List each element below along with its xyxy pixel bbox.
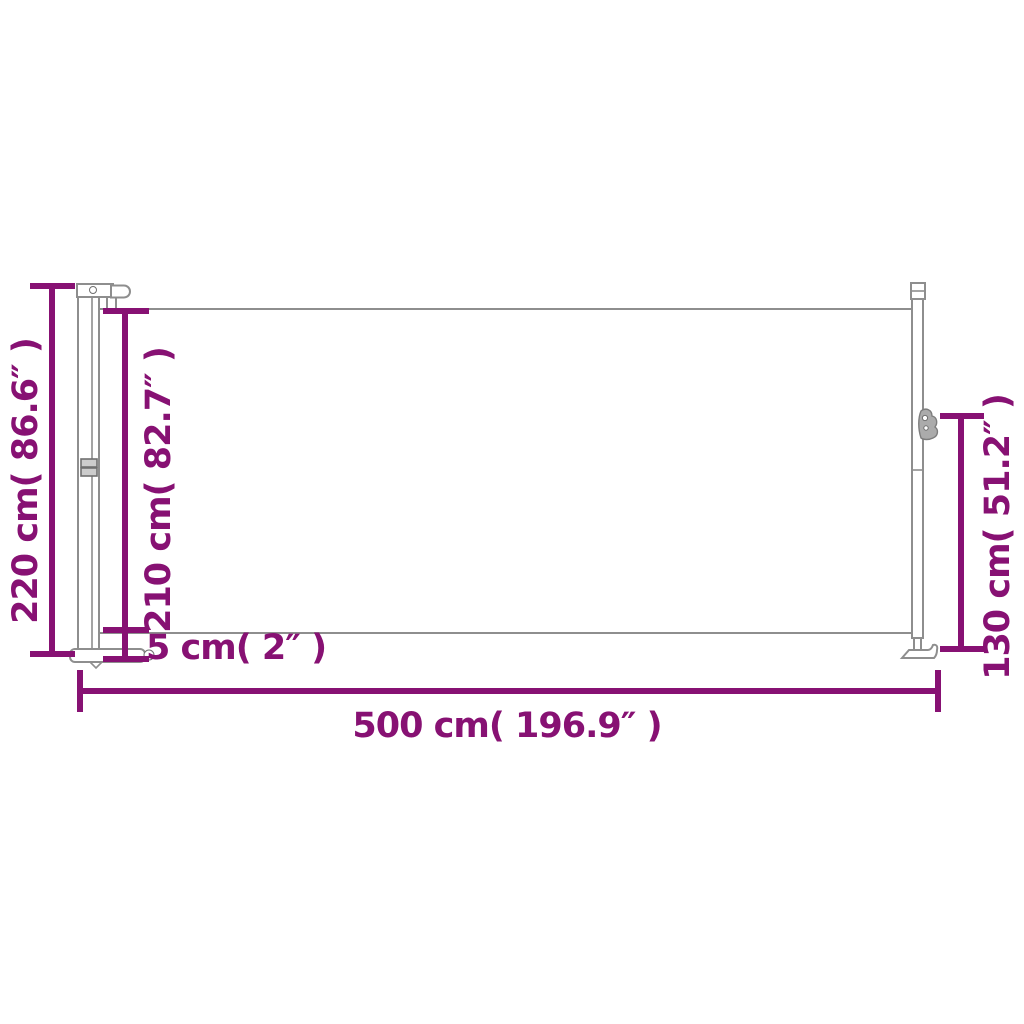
front-post-body xyxy=(912,299,923,638)
dimension-total-width: 500 cm( 196.9″ ) xyxy=(77,670,941,746)
awning-dimension-diagram-page: 220 cm( 86.6″ ) 210 cm( 82.7″ ) 5 cm( 2″… xyxy=(0,0,1024,1024)
dim-cap xyxy=(30,651,75,657)
cassette-top-arm xyxy=(111,286,130,298)
dim-label-total-width: 500 cm( 196.9″ ) xyxy=(352,706,661,746)
cap-screw-icon xyxy=(90,287,97,294)
front-post-lower-tube xyxy=(914,638,921,650)
wall-bracket-upper xyxy=(81,459,97,467)
awning-fabric-panel xyxy=(99,309,912,633)
handle-hole-lower xyxy=(924,426,928,430)
handle-hole-upper xyxy=(922,415,927,420)
awning-dimension-diagram: 220 cm( 86.6″ ) 210 cm( 82.7″ ) 5 cm( 2″… xyxy=(0,0,1024,1024)
dimension-total-height: 220 cm( 86.6″ ) xyxy=(6,283,75,657)
wall-bracket-lower xyxy=(81,468,97,476)
dim-line xyxy=(122,630,128,660)
dim-label-front-post-height: 130 cm( 51.2″ ) xyxy=(978,394,1018,680)
dim-line xyxy=(122,311,128,630)
dim-label-ground-clearance: 5 cm( 2″ ) xyxy=(146,628,326,668)
dim-line xyxy=(958,416,964,649)
handle-icon xyxy=(919,409,938,439)
dimension-front-post-height: 130 cm( 51.2″ ) xyxy=(940,394,1018,680)
dim-line xyxy=(49,286,55,654)
dim-label-total-height: 220 cm( 86.6″ ) xyxy=(6,338,46,624)
dim-cap xyxy=(103,656,149,662)
dim-cap xyxy=(935,670,941,712)
dim-line xyxy=(80,688,938,694)
dim-label-fabric-height: 210 cm( 82.7″ ) xyxy=(139,347,179,633)
